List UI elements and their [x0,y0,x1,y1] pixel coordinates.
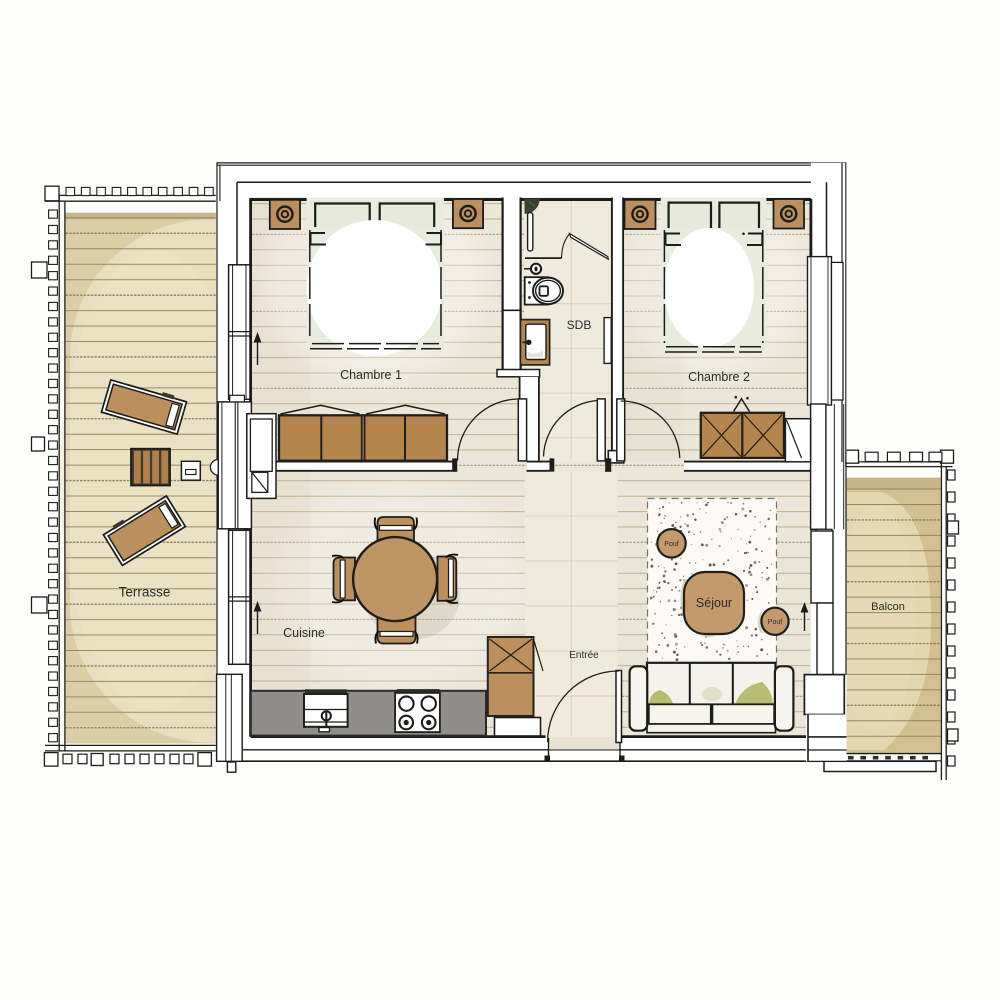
svg-text:Pouf: Pouf [768,619,782,626]
svg-text:Balcon: Balcon [871,601,905,613]
svg-text:Chambre 1: Chambre 1 [340,368,402,382]
svg-text:Séjour: Séjour [696,596,732,610]
svg-text:Pouf: Pouf [664,541,678,548]
svg-text:SDB: SDB [567,318,592,332]
svg-text:Entrée: Entrée [569,650,599,661]
svg-text:Cuisine: Cuisine [283,626,325,640]
svg-text:Chambre 2: Chambre 2 [688,370,750,384]
svg-text:Terrasse: Terrasse [119,585,171,600]
